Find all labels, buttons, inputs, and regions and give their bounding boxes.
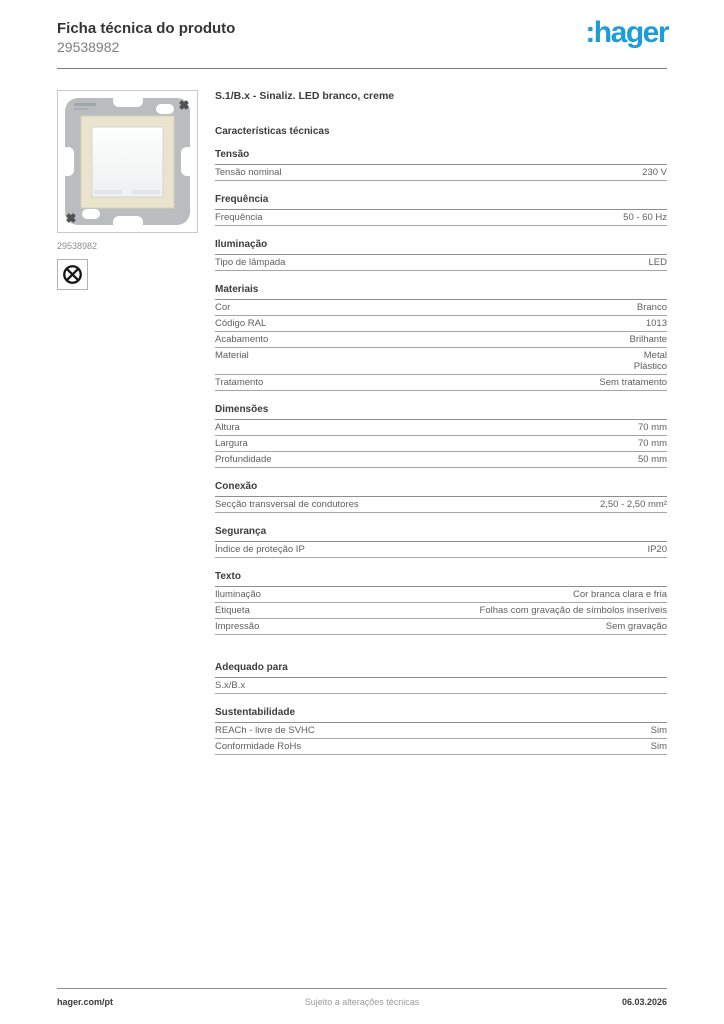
spec-row-value: Sim: [313, 741, 667, 752]
page-title: Ficha técnica do produto: [57, 20, 235, 38]
spec-section: ConexãoSecção transversal de condutores2…: [215, 481, 667, 513]
spec-row-label: Código RAL: [215, 318, 278, 329]
header-divider: [57, 68, 667, 69]
spec-row-label: Cor: [215, 302, 242, 313]
spec-row-label: Conformidade RoHs: [215, 741, 313, 752]
cutout-bottom: [113, 216, 143, 229]
spec-row-value: 1013: [278, 318, 667, 329]
datasheet-page: Ficha técnica do produto 29538982 :hager: [0, 0, 724, 1024]
spec-row-label: Etiqueta: [215, 605, 262, 616]
spec-row-value: 50 mm: [284, 454, 667, 465]
spec-row-value: 70 mm: [252, 422, 667, 433]
spec-row: Profundidade50 mm: [215, 452, 667, 468]
spec-section-title: Frequência: [215, 194, 667, 210]
spec-row: IluminaçãoCor branca clara e fria: [215, 587, 667, 603]
spec-section: SustentabilidadeREACh - livre de SVHCSim…: [215, 707, 667, 755]
lamp-symbol-icon: [57, 259, 88, 290]
spec-row: Índice de proteção IPIP20: [215, 542, 667, 558]
spec-section: Adequado paraS.x/B.x: [215, 662, 667, 694]
hager-logo: :hager: [585, 16, 668, 50]
spec-row: AcabamentoBrilhante: [215, 332, 667, 348]
cutout-top: [113, 94, 143, 107]
spec-row: EtiquetaFolhas com gravação de símbolos …: [215, 603, 667, 619]
spec-row-label: S.x/B.x: [215, 680, 257, 691]
spec-row-label: Secção transversal de condutores: [215, 499, 371, 510]
spec-section-title: Sustentabilidade: [215, 707, 667, 723]
spec-column: S.1/B.x - Sinaliz. LED branco, creme Car…: [215, 90, 667, 768]
spec-row-value: Folhas com gravação de símbolos inseríve…: [262, 605, 667, 616]
spec-section: MateriaisCorBrancoCódigo RAL1013Acabamen…: [215, 284, 667, 391]
spec-row: Altura70 mm: [215, 420, 667, 436]
spec-row: Secção transversal de condutores2,50 - 2…: [215, 497, 667, 513]
footer-note: Sujeito a alterações técnicas: [0, 997, 724, 1007]
spec-row-label: REACh - livre de SVHC: [215, 725, 327, 736]
spec-row-value: Brilhante: [280, 334, 667, 345]
spec-row: Tipo de lâmpadaLED: [215, 255, 667, 271]
spec-row-label: Tensão nominal: [215, 167, 294, 178]
spec-row-label: Profundidade: [215, 454, 284, 465]
spec-row-label: Tipo de lâmpada: [215, 257, 297, 268]
spec-row: Tensão nominal230 V: [215, 165, 667, 181]
spec-row-label: Largura: [215, 438, 260, 449]
footer-date: 06.03.2026: [622, 997, 667, 1007]
tech-characteristics-heading: Características técnicas: [215, 126, 667, 138]
plate-print: [74, 103, 96, 106]
spec-row: REACh - livre de SVHCSim: [215, 723, 667, 739]
image-caption: 29538982: [57, 241, 97, 251]
product-photo-drawing: [58, 91, 197, 232]
spec-row-label: Índice de proteção IP: [215, 544, 317, 555]
spec-section-title: Tensão: [215, 149, 667, 165]
product-image: [57, 90, 198, 233]
spec-row-label: Tratamento: [215, 377, 275, 388]
spec-section-title: Materiais: [215, 284, 667, 300]
spec-section-title: Conexão: [215, 481, 667, 497]
spec-row: S.x/B.x: [215, 678, 667, 694]
spec-section-title: Segurança: [215, 526, 667, 542]
product-code: 29538982: [57, 39, 119, 56]
spec-row: MaterialMetal Plástico: [215, 348, 667, 375]
spec-row-value: Branco: [242, 302, 667, 313]
spec-row-value: Sem tratamento: [275, 377, 667, 388]
crossed-circle-icon: [61, 263, 84, 286]
spec-row-value: IP20: [317, 544, 667, 555]
spec-section-title: Iluminação: [215, 239, 667, 255]
spec-row-label: Material: [215, 350, 261, 361]
spec-section-title: Dimensões: [215, 404, 667, 420]
spec-row: Conformidade RoHsSim: [215, 739, 667, 755]
spec-row: Largura70 mm: [215, 436, 667, 452]
spec-row-value: 230 V: [294, 167, 667, 178]
spec-row-value: 50 - 60 Hz: [275, 212, 667, 223]
spec-row-value: 70 mm: [260, 438, 667, 449]
product-title: S.1/B.x - Sinaliz. LED branco, creme: [215, 90, 667, 102]
spec-row-value: 2,50 - 2,50 mm²: [371, 499, 667, 510]
spec-row-label: Acabamento: [215, 334, 280, 345]
footer-divider: [57, 988, 667, 989]
cutout-left: [61, 147, 74, 176]
spec-row-value: LED: [297, 257, 667, 268]
spec-section: IluminaçãoTipo de lâmpadaLED: [215, 239, 667, 271]
cutout-right: [181, 147, 194, 176]
spec-section: FrequênciaFrequência50 - 60 Hz: [215, 194, 667, 226]
spec-row-value: Sem gravação: [271, 621, 667, 632]
spec-row-label: Altura: [215, 422, 252, 433]
spec-row-label: Impressão: [215, 621, 271, 632]
spec-row: TratamentoSem tratamento: [215, 375, 667, 391]
spec-row: ImpressãoSem gravação: [215, 619, 667, 635]
spec-section-title: Texto: [215, 571, 667, 587]
spec-row: Frequência50 - 60 Hz: [215, 210, 667, 226]
spec-section: TensãoTensão nominal230 V: [215, 149, 667, 181]
spec-row-value: Metal Plástico: [261, 350, 667, 372]
signal-lens: [92, 127, 163, 197]
spec-row-label: Frequência: [215, 212, 275, 223]
spec-sections: TensãoTensão nominal230 VFrequênciaFrequ…: [215, 149, 667, 755]
spec-row-label: Iluminação: [215, 589, 273, 600]
spec-row-value: Sim: [327, 725, 667, 736]
spec-row: CorBranco: [215, 300, 667, 316]
spec-row-value: Cor branca clara e fria: [273, 589, 667, 600]
spec-section-title: Adequado para: [215, 662, 667, 678]
spec-row: Código RAL1013: [215, 316, 667, 332]
spec-section: TextoIluminaçãoCor branca clara e friaEt…: [215, 571, 667, 635]
spec-section: DimensõesAltura70 mmLargura70 mmProfundi…: [215, 404, 667, 468]
spec-section: SegurançaÍndice de proteção IPIP20: [215, 526, 667, 558]
